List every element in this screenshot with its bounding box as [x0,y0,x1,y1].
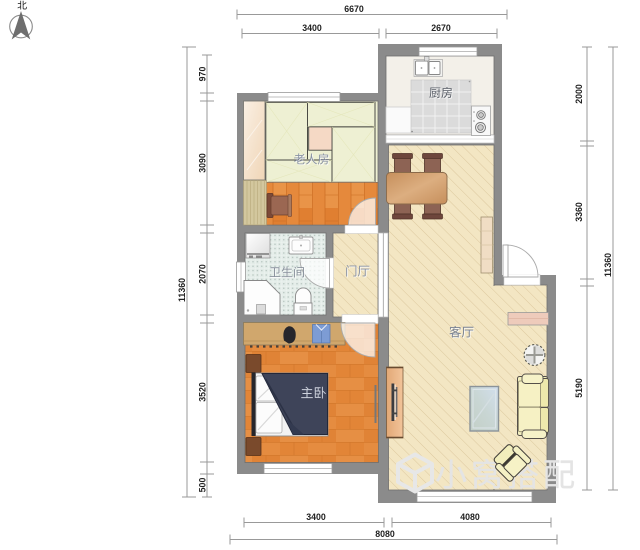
svg-text:4080: 4080 [460,512,480,522]
svg-text:970: 970 [198,67,208,82]
svg-text:3400: 3400 [306,512,326,522]
svg-text:11360: 11360 [603,253,613,277]
svg-text:3520: 3520 [198,382,208,402]
svg-text:6670: 6670 [344,4,364,14]
svg-text:2000: 2000 [574,84,584,104]
svg-text:500: 500 [198,478,208,493]
svg-text:2670: 2670 [431,23,451,33]
svg-text:3090: 3090 [198,153,208,173]
svg-text:3360: 3360 [574,202,584,222]
svg-text:5190: 5190 [574,378,584,398]
svg-text:8080: 8080 [375,529,395,539]
svg-text:3400: 3400 [302,23,322,33]
svg-text:11360: 11360 [177,278,187,302]
svg-text:2070: 2070 [198,264,208,284]
